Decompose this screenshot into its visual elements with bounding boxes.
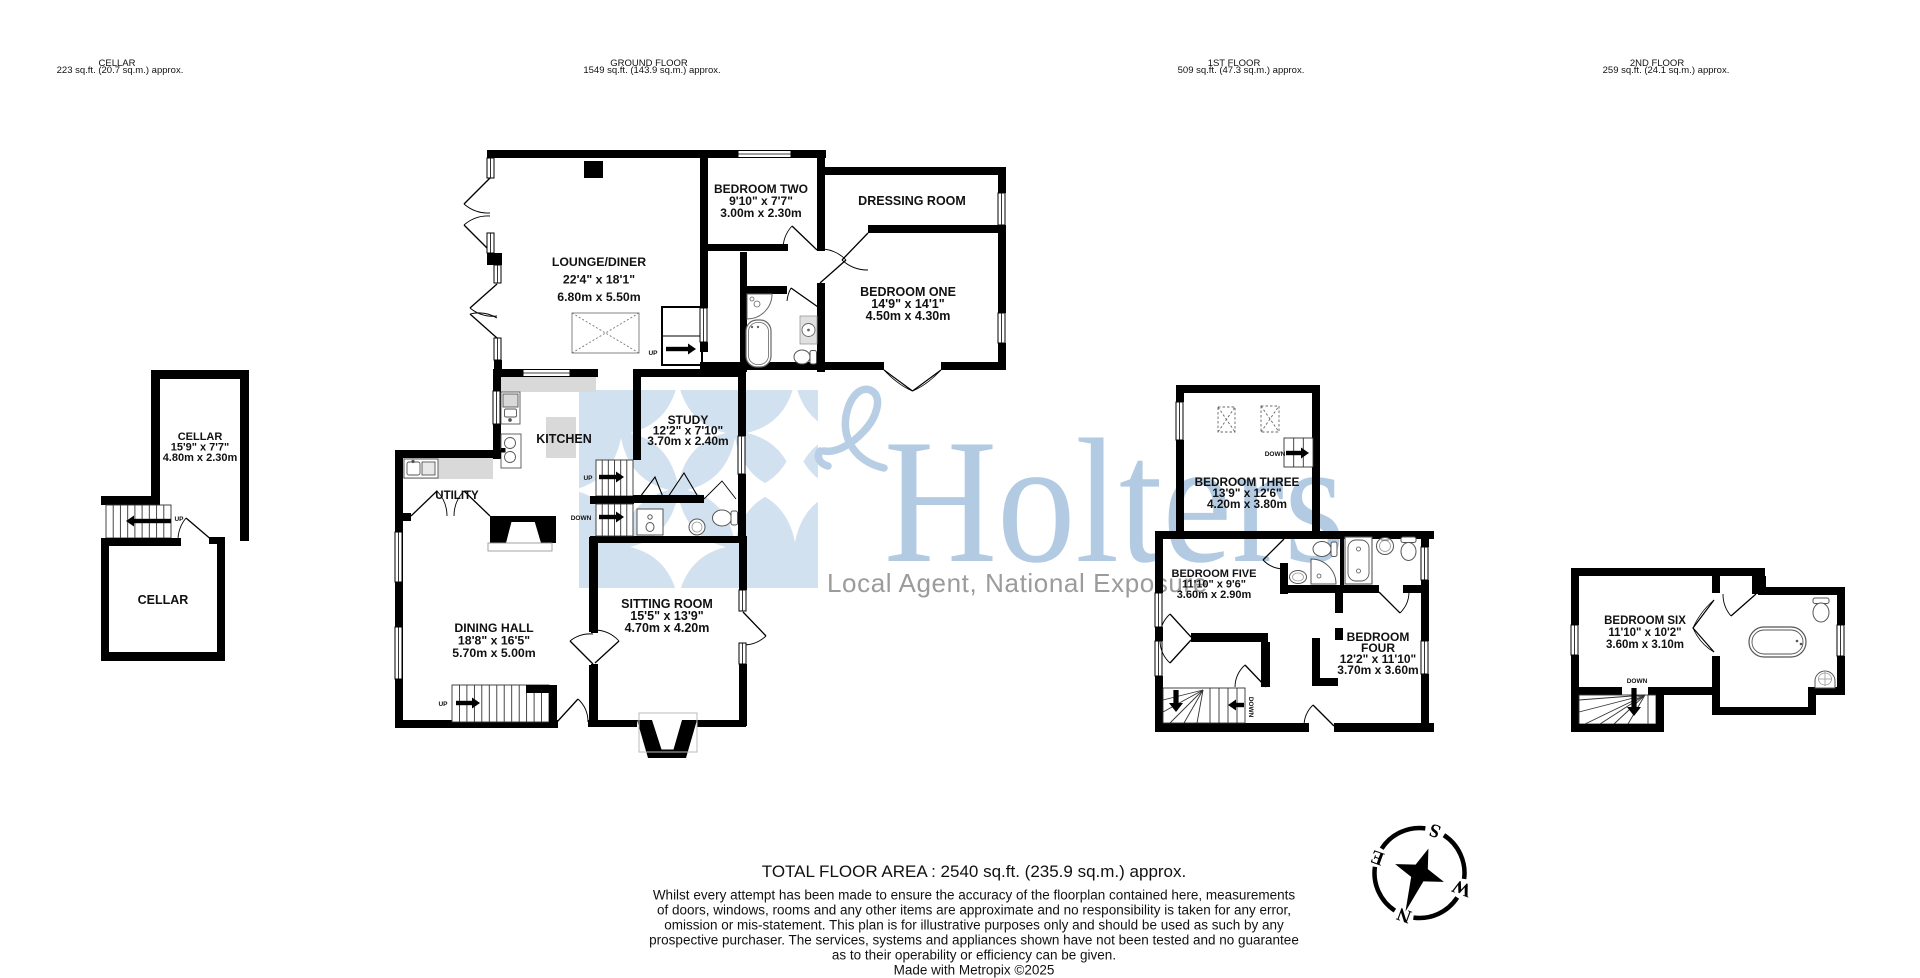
- svg-text:CELLAR: CELLAR: [138, 593, 189, 607]
- svg-text:BEDROOM SIX11'10" x 10'2"3.60: BEDROOM SIX11'10" x 10'2"3.60m x 3.10m: [1604, 615, 1686, 651]
- svg-text:DOWN: DOWN: [1627, 678, 1648, 685]
- svg-text:BEDROOMFOUR12'2" x 11'10"3.70: BEDROOMFOUR12'2" x 11'10"3.70m x 3.60m: [1337, 630, 1418, 677]
- svg-text:BEDROOM ONE14'9" x 14'1"4.50m: BEDROOM ONE14'9" x 14'1"4.50m x 4.30m: [860, 285, 956, 323]
- svg-text:DOWN: DOWN: [1265, 451, 1286, 458]
- svg-text:DINING HALL18'8" x 16'5"5.70m: DINING HALL18'8" x 16'5"5.70m x 5.00m: [452, 621, 535, 660]
- svg-text:DOWN: DOWN: [571, 515, 592, 522]
- svg-text:UP: UP: [438, 701, 448, 708]
- svg-text:LOUNGE/DINER22'4" x 18'1"6.80: LOUNGE/DINER22'4" x 18'1"6.80m x 5.50m: [552, 255, 646, 304]
- svg-text:SITTING ROOM15'5" x 13'9"4.70: SITTING ROOM15'5" x 13'9"4.70m x 4.20m: [621, 597, 713, 635]
- svg-text:KITCHEN: KITCHEN: [536, 432, 592, 446]
- svg-text:DRESSING ROOM: DRESSING ROOM: [858, 194, 966, 208]
- svg-text:BEDROOM FIVE11'10" x 9'6"3.60: BEDROOM FIVE11'10" x 9'6"3.60m x 2.90m: [1172, 568, 1257, 601]
- svg-text:TOTAL FLOOR AREA : 2540 sq.ft.: TOTAL FLOOR AREA : 2540 sq.ft. (235.9 sq…: [762, 862, 1187, 881]
- svg-text:UP: UP: [648, 350, 658, 357]
- svg-text:UP: UP: [583, 475, 593, 482]
- svg-text:Local Agent, National Exposure: Local Agent, National Exposure: [827, 568, 1208, 598]
- svg-text:DOWN: DOWN: [1247, 697, 1254, 718]
